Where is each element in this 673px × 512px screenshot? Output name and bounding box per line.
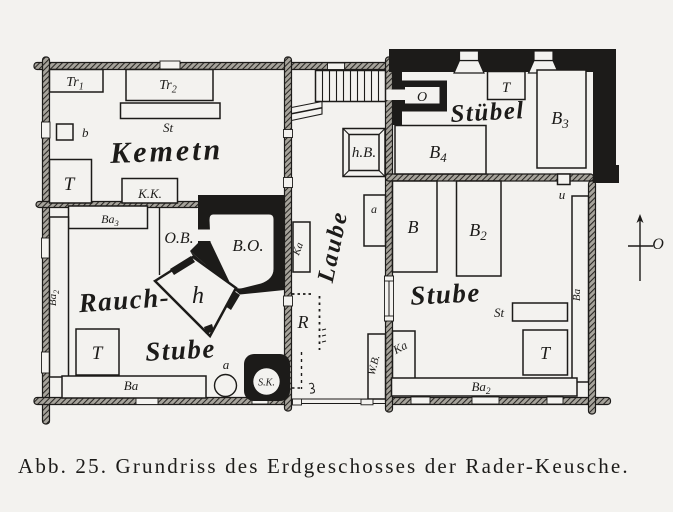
svg-text:T: T (92, 343, 104, 364)
svg-text:a: a (371, 202, 377, 216)
svg-text:B: B (408, 217, 419, 237)
svg-text:St: St (494, 305, 505, 320)
svg-text:Kemetn: Kemetn (109, 133, 224, 170)
svg-text:h.B.: h.B. (352, 145, 376, 161)
svg-text:Stübel: Stübel (450, 97, 526, 128)
svg-text:K.K.: K.K. (137, 186, 162, 201)
svg-text:u: u (559, 187, 566, 202)
svg-text:O: O (417, 90, 427, 105)
svg-text:Ba: Ba (571, 288, 583, 301)
svg-text:S.K.: S.K. (258, 378, 275, 389)
svg-text:b: b (82, 125, 89, 140)
svg-text:Ba: Ba (124, 378, 139, 393)
svg-text:B.O.: B.O. (232, 236, 263, 255)
svg-text:O: O (652, 236, 664, 253)
svg-text:Abb. 25. Grundriss des Erdgesc: Abb. 25. Grundriss des Erdgeschosses der… (18, 454, 630, 478)
svg-text:Stube: Stube (145, 333, 217, 367)
svg-text:R: R (297, 312, 309, 332)
svg-text:St: St (163, 120, 174, 135)
svg-text:a: a (223, 357, 230, 372)
svg-text:h: h (192, 283, 204, 309)
svg-text:Stube: Stube (410, 277, 482, 311)
svg-text:O.B.: O.B. (164, 230, 193, 247)
svg-text:T: T (64, 174, 76, 195)
